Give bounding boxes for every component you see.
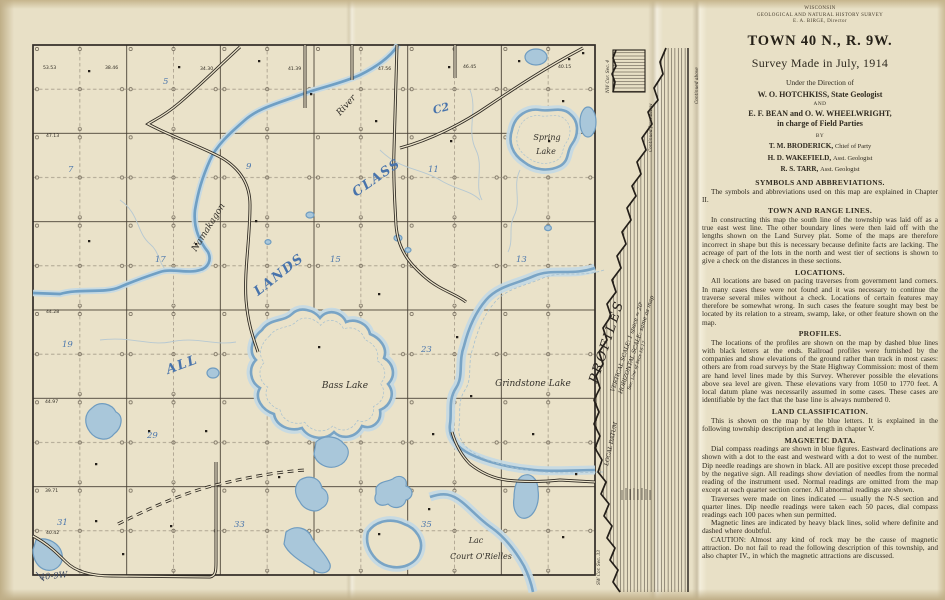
spring-lake-label-1: Spring bbox=[533, 133, 560, 142]
field-chiefs: E. F. BEAN and O. W. WHEELWRIGHT, bbox=[702, 109, 938, 118]
agency-line-3: E. A. BIRGE, Director bbox=[702, 19, 938, 26]
staff-name: R. S. TARR, bbox=[780, 165, 818, 173]
staff-role: Asst. Geologist bbox=[820, 166, 859, 173]
staff-role: Chief of Party bbox=[835, 143, 871, 150]
description-sections: SYMBOLS AND ABBREVIATIONS. The symbols a… bbox=[702, 178, 938, 560]
svg-text:9: 9 bbox=[246, 162, 252, 172]
svg-text:29: 29 bbox=[146, 431, 158, 441]
svg-text:39.71: 39.71 bbox=[45, 488, 58, 494]
and-word: AND bbox=[702, 101, 938, 107]
lac-label-2: Court O'Rielles bbox=[450, 552, 512, 561]
staff-line: H. D. WAKEFIELD, Asst. Geologist bbox=[702, 154, 938, 162]
section-paragraph: Traverses were made on lines indicated —… bbox=[702, 495, 938, 520]
staff-line: T. M. BRODERICK, Chief of Party bbox=[702, 142, 938, 150]
section-paragraph: In constructing this map the south line … bbox=[702, 216, 938, 265]
staff-name: T. M. BRODERICK, bbox=[769, 142, 833, 150]
scanned-map-sheet: { "colors": { "paper": "#e9e1c8", "water… bbox=[0, 0, 945, 600]
svg-text:23: 23 bbox=[420, 345, 432, 355]
svg-text:38.46: 38.46 bbox=[105, 65, 118, 71]
state-geologist: W. O. HOTCHKISS, State Geologist bbox=[702, 90, 938, 99]
grindstone-lake-label: Grindstone Lake bbox=[495, 379, 571, 389]
svg-text:47.13: 47.13 bbox=[46, 133, 59, 139]
svg-text:5: 5 bbox=[163, 77, 168, 87]
svg-text:40.42: 40.42 bbox=[46, 530, 59, 536]
section-heading-symbols: SYMBOLS AND ABBREVIATIONS. bbox=[702, 178, 938, 187]
staff-line: R. S. TARR, Asst. Geologist bbox=[702, 165, 938, 173]
staff-name: H. D. WAKEFIELD, bbox=[768, 154, 832, 162]
by-word: BY bbox=[702, 133, 938, 139]
svg-text:13: 13 bbox=[516, 255, 527, 265]
township-map: Namakagon River Spring Lake Bass Lake Gr… bbox=[0, 0, 700, 600]
svg-text:7: 7 bbox=[68, 165, 74, 175]
field-chiefs-role: in charge of Field Parties bbox=[702, 119, 938, 128]
continued-from-below-label: Continued from below bbox=[649, 103, 654, 152]
sheet-title: TOWN 40 N., R. 9W. bbox=[702, 33, 938, 50]
section-paragraph: The symbols and abbreviations used on th… bbox=[702, 188, 938, 204]
bass-lake-label: Bass Lake bbox=[321, 381, 368, 391]
svg-text:35: 35 bbox=[421, 520, 432, 530]
section-paragraph: Magnetic lines are indicated by heavy bl… bbox=[702, 519, 938, 535]
profile-inset-box bbox=[613, 50, 645, 92]
description-panel: WISCONSIN GEOLOGICAL AND NATURAL HISTORY… bbox=[702, 6, 938, 560]
svg-text:40.15: 40.15 bbox=[558, 64, 571, 70]
lac-label-1: Lac bbox=[468, 536, 484, 545]
svg-text:47.56: 47.56 bbox=[378, 66, 391, 72]
svg-text:17: 17 bbox=[155, 255, 166, 265]
section-paragraph: All locations are based on pacing traver… bbox=[702, 277, 938, 326]
staff-role: Asst. Geologist bbox=[833, 155, 872, 162]
continued-above-label: Continued above bbox=[695, 67, 700, 104]
profile-strip: NW Cor. Sec. 4 Continued from below Cont… bbox=[586, 48, 700, 592]
svg-text:46.45: 46.45 bbox=[463, 64, 476, 70]
svg-text:33: 33 bbox=[234, 520, 245, 530]
svg-text:41.39: 41.39 bbox=[288, 66, 301, 72]
svg-text:11: 11 bbox=[428, 165, 439, 175]
svg-text:19: 19 bbox=[62, 340, 73, 350]
survey-date: Survey Made in July, 1914 bbox=[702, 56, 938, 71]
svg-text:44.28: 44.28 bbox=[46, 309, 59, 315]
section-paragraph: This is shown on the map by the blue let… bbox=[702, 417, 938, 433]
section-paragraph: Dial compass readings are shown in blue … bbox=[702, 445, 938, 494]
township-corner-label: 40-9W bbox=[38, 570, 69, 583]
section-heading-land-classification: LAND CLASSIFICATION. bbox=[702, 407, 938, 416]
profile-inset-label: NW Cor. Sec. 4 bbox=[606, 60, 611, 94]
section-paragraph-caution: CAUTION: Almost any kind of rock may be … bbox=[702, 536, 938, 561]
direction-line: Under the Direction of bbox=[702, 78, 938, 87]
svg-text:44.97: 44.97 bbox=[45, 399, 58, 405]
section-paragraph: The locations of the profiles are shown … bbox=[702, 339, 938, 405]
svg-text:53.53: 53.53 bbox=[43, 65, 56, 71]
section-heading-profiles: PROFILES. bbox=[702, 329, 938, 338]
spring-lake-label-2: Lake bbox=[535, 147, 556, 156]
svg-text:34.30: 34.30 bbox=[200, 66, 213, 72]
svg-text:31: 31 bbox=[57, 518, 68, 528]
sw-corner-label: SW Cor. Sec. 33 bbox=[597, 550, 602, 585]
svg-text:15: 15 bbox=[330, 255, 341, 265]
agency-header: WISCONSIN GEOLOGICAL AND NATURAL HISTORY… bbox=[702, 6, 938, 26]
